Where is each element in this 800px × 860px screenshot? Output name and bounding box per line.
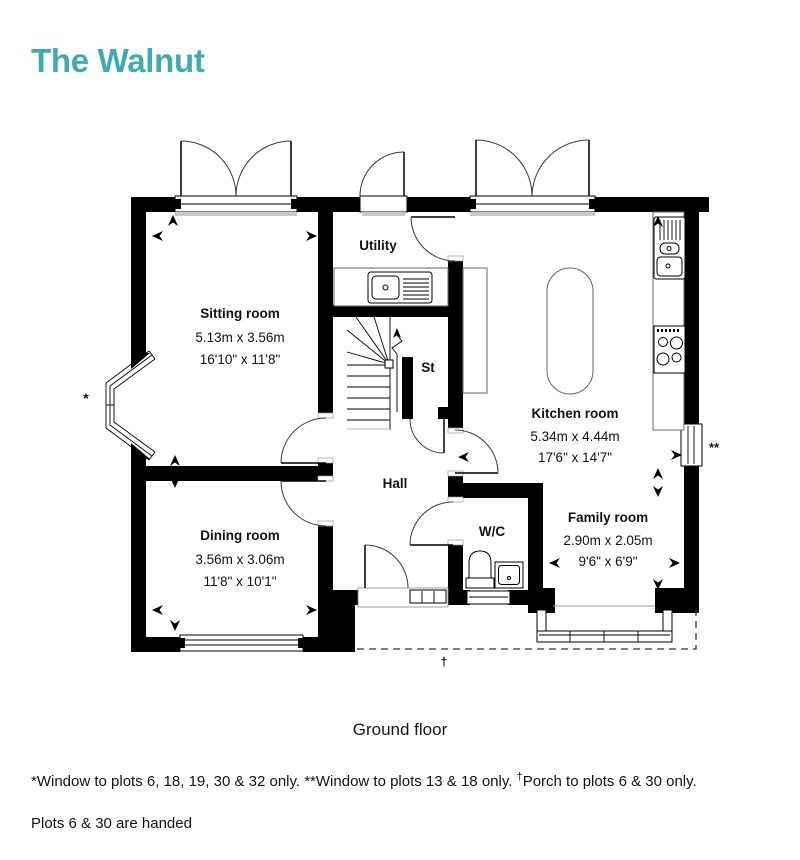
room-label-wc: W/C (479, 524, 505, 539)
basin (495, 562, 523, 588)
room-size-imperial-kitchen: 17'6" x 14'7" (538, 450, 612, 465)
dining-window (180, 635, 303, 651)
bay-window (106, 351, 155, 460)
room-size-metric-dining: 3.56m x 3.06m (195, 552, 284, 567)
marker-kitchen-window: ** (709, 440, 720, 455)
kitchen-fixtures (463, 212, 685, 430)
wc-fixtures (466, 551, 523, 588)
footnote-part1: *Window to plots 6, 18, 19, 30 & 32 only… (31, 773, 517, 790)
room-size-imperial-family: 9'6" x 6'9" (578, 554, 637, 569)
room-label-kitchen: Kitchen room (531, 406, 618, 421)
kitchen-french-doors (470, 140, 595, 216)
marker-porch: † (441, 655, 448, 669)
door-hall-wc (410, 502, 453, 545)
marker-bay-window: * (83, 390, 89, 406)
stairs (347, 317, 402, 430)
utility-sink (368, 272, 432, 303)
porch-outline (357, 606, 696, 649)
footnote-part2: Porch to plots 6 & 30 only. (523, 773, 697, 790)
room-size-metric-family: 2.90m x 2.05m (563, 533, 652, 548)
room-size-imperial-sitting: 16'10" x 11'8" (200, 352, 281, 367)
room-label-dining: Dining room (200, 528, 280, 543)
door-store (410, 419, 444, 453)
family-bay-window (537, 606, 672, 642)
door-hall-sitting (281, 418, 326, 463)
kitchen-island (547, 268, 593, 394)
sitting-french-doors (175, 141, 297, 216)
floor-caption: Ground floor (0, 720, 800, 740)
utility-fixtures (334, 268, 448, 306)
footnote-line1: *Window to plots 6, 18, 19, 30 & 32 only… (31, 771, 697, 790)
front-door (358, 545, 448, 607)
room-label-store: St (421, 360, 435, 375)
room-label-utility: Utility (359, 238, 397, 253)
toilet (466, 551, 494, 588)
room-size-imperial-dining: 11'8" x 10'1" (203, 574, 276, 589)
door-utility-kitchen (411, 217, 455, 261)
room-size-metric-kitchen: 5.34m x 4.44m (530, 429, 619, 444)
room-label-sitting: Sitting room (200, 306, 280, 321)
wc-window (467, 591, 510, 604)
footnote-line2: Plots 6 & 30 are handed (31, 815, 192, 832)
room-label-family: Family room (568, 510, 648, 525)
hob (654, 326, 685, 373)
room-size-metric-sitting: 5.13m x 3.56m (195, 330, 284, 345)
room-label-hall: Hall (383, 476, 408, 491)
utility-exterior-door (360, 152, 407, 216)
kitchen-sink (654, 217, 685, 279)
door-hall-kitchen (455, 430, 498, 473)
door-hall-dining (281, 481, 326, 526)
